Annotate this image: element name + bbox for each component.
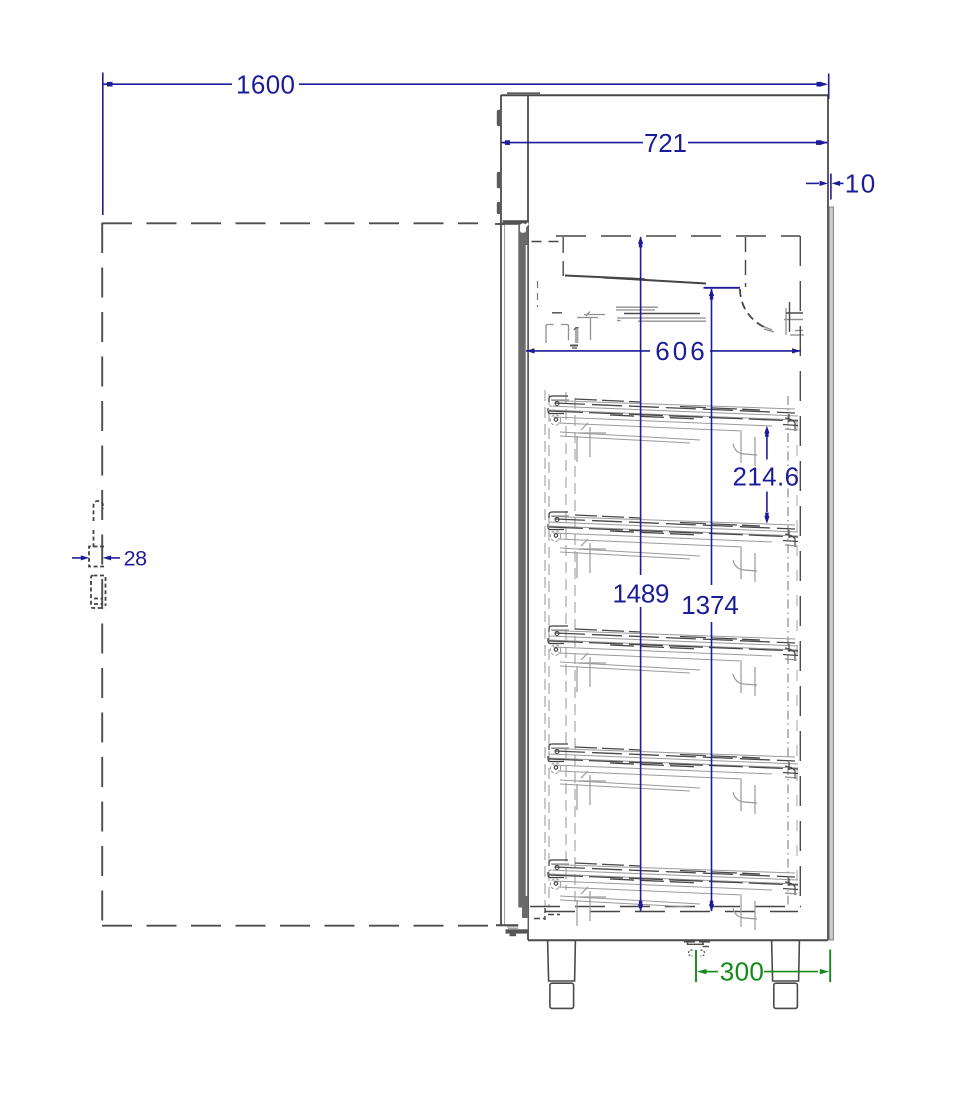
- svg-text:1374: 1374: [681, 590, 739, 620]
- svg-text:214.6: 214.6: [733, 461, 800, 491]
- svg-text:28: 28: [124, 547, 148, 571]
- svg-text:1600: 1600: [236, 70, 295, 100]
- svg-text:10: 10: [845, 169, 876, 199]
- svg-text:300: 300: [720, 957, 764, 987]
- svg-text:1489: 1489: [613, 579, 670, 609]
- svg-text:606: 606: [655, 336, 705, 366]
- svg-text:721: 721: [644, 128, 687, 158]
